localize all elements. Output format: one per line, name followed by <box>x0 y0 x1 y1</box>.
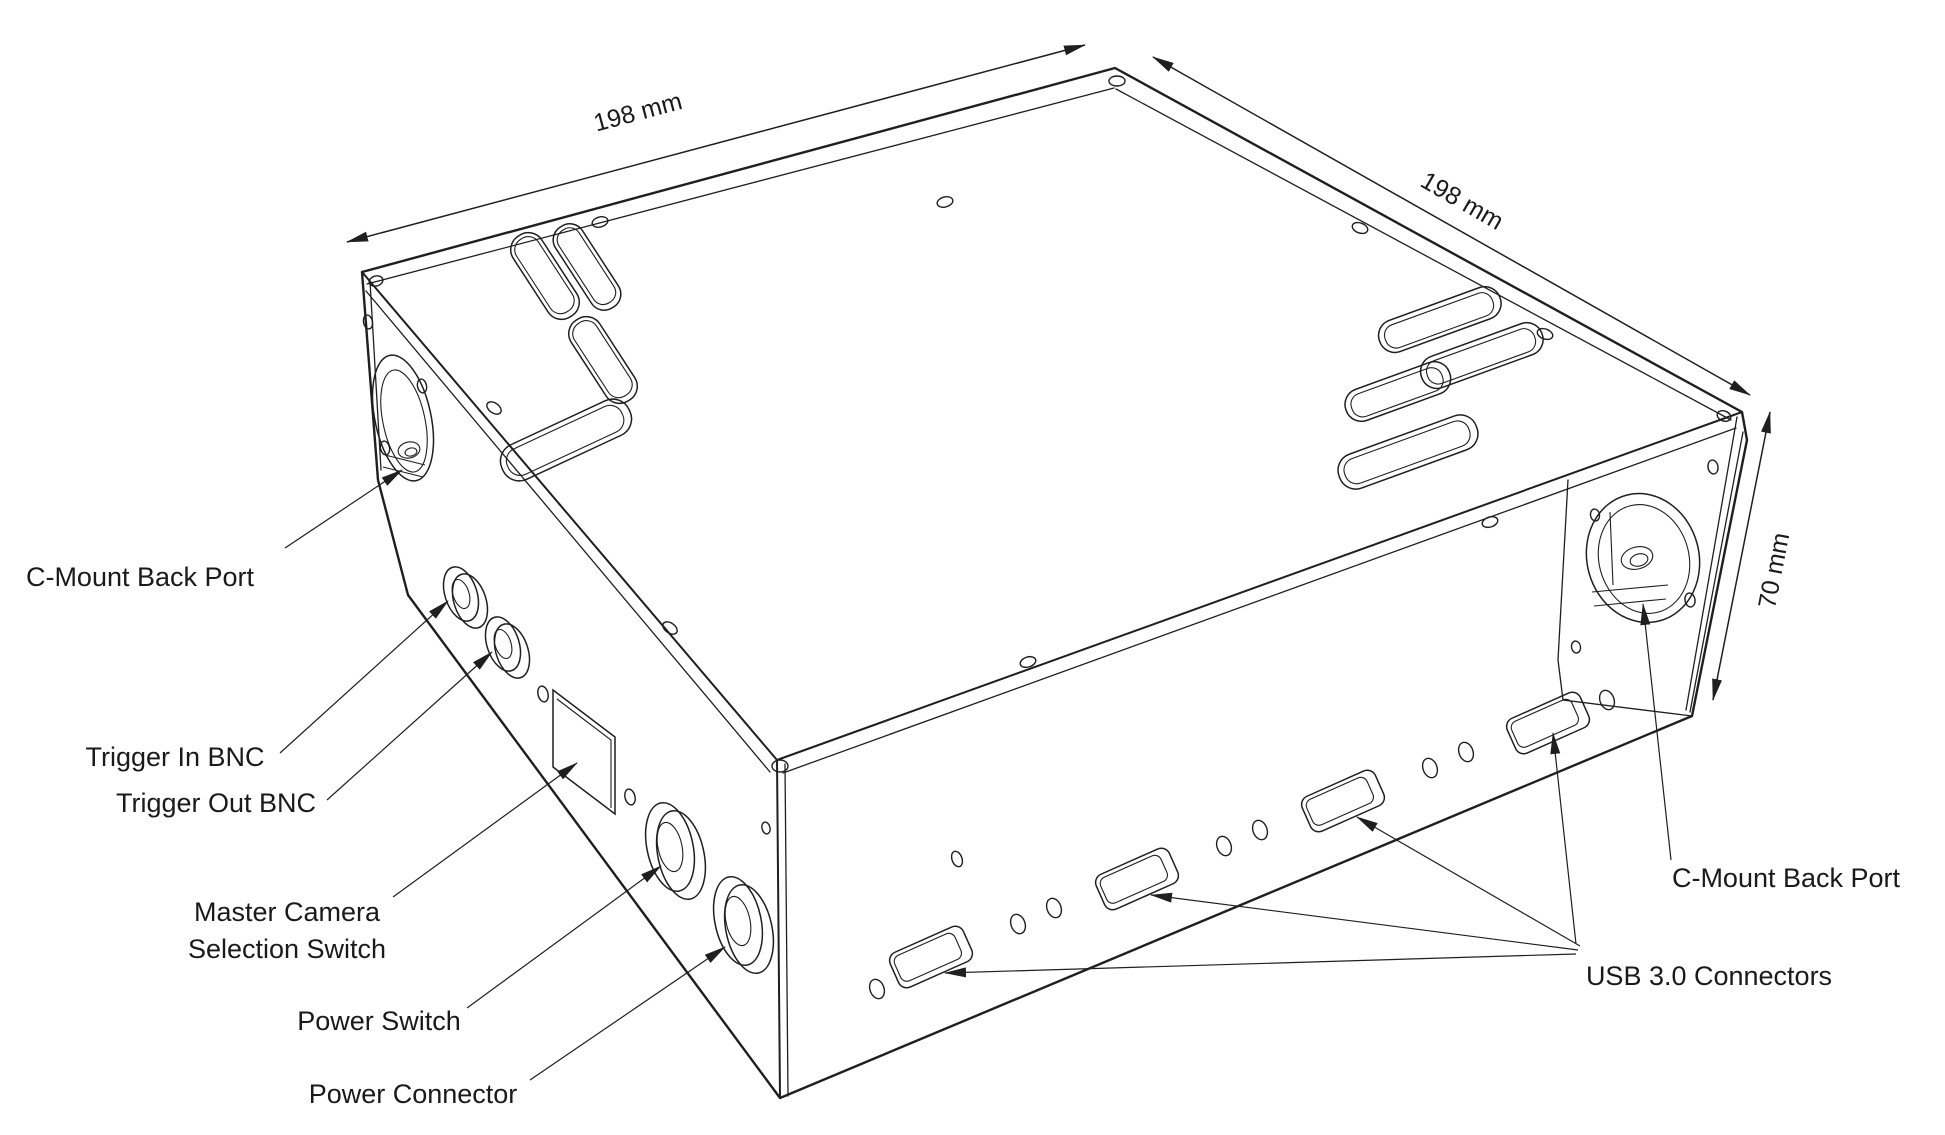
small-hole <box>1250 818 1270 842</box>
front-corner-edge <box>777 760 780 1098</box>
small-hole <box>1008 912 1028 936</box>
screw-hole <box>1707 459 1719 475</box>
screw-hole <box>1109 76 1125 86</box>
label-power-switch: Power Switch <box>297 1006 461 1036</box>
screw-hole <box>591 215 609 229</box>
small-hole <box>761 821 772 835</box>
trigger-out-bnc-port <box>479 612 536 682</box>
small-hole <box>1044 896 1064 920</box>
dimension-annotations: 198 mm 198 mm 70 mm <box>347 45 1795 700</box>
leader-usb-2 <box>1151 895 1578 950</box>
label-power-connector: Power Connector <box>309 1079 518 1109</box>
screw-hole <box>661 619 680 636</box>
top-face-details <box>368 76 1732 772</box>
label-usb-connectors: USB 3.0 Connectors <box>1586 961 1832 991</box>
small-hole <box>1420 756 1440 780</box>
small-hole <box>950 850 965 868</box>
leader-trigger-out <box>327 652 492 800</box>
leader-lines <box>280 470 1671 1080</box>
label-c-mount-back-port-left: C-Mount Back Port <box>26 562 255 592</box>
screw-hole <box>1351 221 1369 236</box>
diagram-page: 198 mm 198 mm 70 mm C-Mount Back Port Tr… <box>0 0 1945 1135</box>
small-hole <box>623 788 637 806</box>
top-slot <box>1416 318 1548 393</box>
label-trigger-in-bnc: Trigger In BNC <box>85 742 264 772</box>
power-switch-cutout <box>638 798 713 904</box>
right-corner-edge-inner2 <box>1690 432 1743 712</box>
screw-hole <box>1684 592 1696 608</box>
screw-hole <box>485 399 504 416</box>
dim-height-label: 70 mm <box>1753 530 1795 610</box>
lid-seam-front-face <box>783 428 1736 773</box>
label-trigger-out-bnc: Trigger Out BNC <box>116 788 316 818</box>
lid-seam-left-face <box>366 291 770 772</box>
front-right-face-edge <box>1558 480 1568 660</box>
leader-power-connector <box>530 947 725 1080</box>
label-master-camera-line2: Selection Switch <box>188 934 386 964</box>
master-camera-switch-cutout <box>553 690 615 814</box>
usb-port-3 <box>1299 767 1388 834</box>
dim-arrow-width <box>347 45 1085 242</box>
leader-master-switch <box>393 763 577 897</box>
lid-seam-back-left <box>367 88 1114 284</box>
small-hole <box>536 685 550 703</box>
callout-labels: C-Mount Back Port Trigger In BNC Trigger… <box>26 562 1901 1109</box>
leader-usb-4 <box>1553 733 1576 944</box>
leader-usb-1 <box>945 954 1576 973</box>
enclosure-body <box>362 68 1747 1098</box>
usb-port-1 <box>887 923 976 990</box>
leader-usb-3 <box>1357 817 1580 946</box>
screw-hole <box>936 195 954 209</box>
label-master-camera-line1: Master Camera <box>194 897 381 927</box>
dim-arrow-depth <box>1153 57 1750 395</box>
enclosure-silhouette <box>362 68 1747 1098</box>
top-slot <box>563 310 644 409</box>
small-hole <box>1214 834 1234 858</box>
small-hole <box>867 977 887 1001</box>
left-face-details <box>362 314 781 978</box>
front-face-details <box>867 688 1617 1001</box>
trigger-in-bnc-port <box>437 562 494 632</box>
dim-depth-label: 198 mm <box>1416 166 1508 235</box>
top-slot <box>1333 410 1483 494</box>
screw-hole <box>1571 640 1582 653</box>
leader-trigger-in <box>280 601 448 753</box>
screw-hole <box>1481 515 1499 529</box>
power-connector-cutout <box>706 872 781 978</box>
c-mount-port-right <box>1572 481 1714 636</box>
camera-enclosure-diagram: 198 mm 198 mm 70 mm C-Mount Back Port Tr… <box>0 0 1945 1135</box>
dim-width-label: 198 mm <box>591 87 685 137</box>
top-slot <box>1341 357 1456 426</box>
top-slot <box>495 393 638 487</box>
leader-power-switch <box>467 866 661 1008</box>
top-slot <box>1374 282 1506 357</box>
usb-port-4 <box>1504 689 1593 756</box>
leader-c-mount-right <box>1643 604 1671 860</box>
c-mount-port-left <box>362 350 443 487</box>
right-face-bottom-edge <box>1558 660 1692 716</box>
front-corner-edge-inner <box>785 764 788 1096</box>
dim-arrow-height <box>1713 412 1770 700</box>
usb-port-2 <box>1093 845 1182 912</box>
small-hole <box>1597 688 1617 712</box>
right-corner-edge-inner <box>1686 417 1737 710</box>
label-c-mount-back-port-right: C-Mount Back Port <box>1672 863 1901 893</box>
small-hole <box>1456 740 1476 764</box>
